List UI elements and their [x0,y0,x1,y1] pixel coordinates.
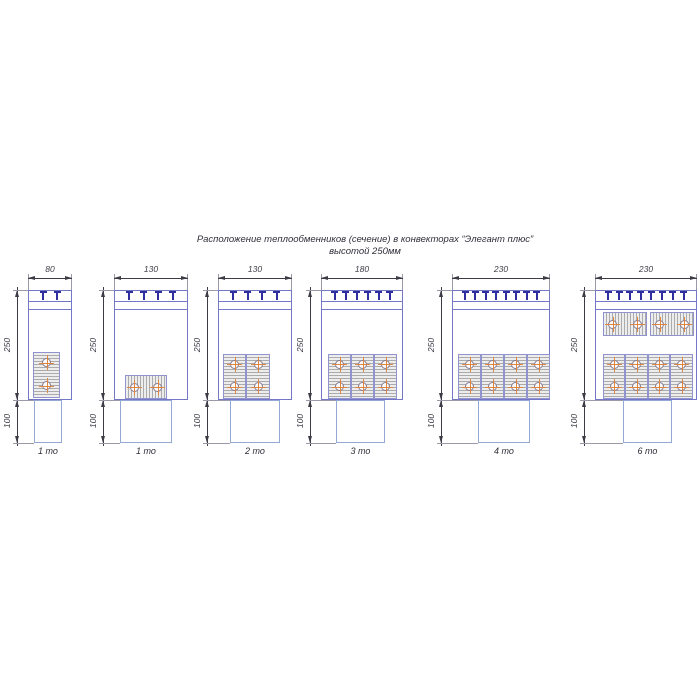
convector-4-mounting-clip-icon [334,291,336,300]
convector-4-mounting-clip-icon [378,291,380,300]
convector-1-height-dim-100-arrow-icon [15,400,19,407]
convector-1-height-dim-250-arrow-icon [15,290,19,297]
convector-3-height-dim-100-arrow-icon [205,436,209,443]
convector-6-mounting-clip-icon [607,291,609,300]
convector-5-width-dim-arrow-icon [543,276,550,280]
tube-crosshair-icon [637,379,638,394]
convector-3-height-dim-250-arrow-icon [205,393,209,400]
tube-crosshair-icon [258,379,259,394]
convector-4-height-dim-100-arrow-icon [308,436,312,443]
convector-6-height-dim-tick [580,400,623,401]
tube-crosshair-icon [470,379,471,394]
convector-1-mounting-clip-icon [42,291,44,300]
tube-crosshair-icon [613,317,614,332]
convector-4-grille-line [322,309,402,310]
convector-2-height-dim-line [103,287,104,446]
tube-crosshair-icon [47,355,48,370]
tube-crosshair-icon [539,379,540,394]
convector-5-height-dim-tick [437,290,452,291]
convector-1-width-dim-arrow-icon [28,276,35,280]
convector-4-height-dim-100-arrow-icon [308,400,312,407]
convector-5-width-dim-label: 230 [476,264,526,274]
convector-5-height-dim-label-250: 250 [426,325,436,365]
tube-crosshair-icon [659,379,660,394]
convector-3-grille-line [219,301,291,302]
convector-4-width-dim-line [321,278,403,279]
convector-5-grille-line [453,309,549,310]
convector-6-width-dim-label: 230 [621,264,671,274]
convector-3-grille-line [219,309,291,310]
tube-crosshair-icon [516,379,517,394]
convector-3-height-dim-tick [203,400,230,401]
convector-5-mounting-clip-icon [515,291,517,300]
convector-2-mounting-clip-icon [128,291,130,300]
tube-crosshair-icon [614,357,615,372]
convector-1-height-dim-label-100: 100 [2,401,12,441]
convector-5-mounting-clip-icon [485,291,487,300]
convector-2-height-dim-label-100: 100 [88,401,98,441]
convector-4-grille-line [322,301,402,302]
convector-6-height-dim-250-arrow-icon [582,393,586,400]
convector-6-grille-line [596,301,696,302]
convector-2-height-dim-tick [99,443,120,444]
tube-crosshair-icon [386,379,387,394]
convector-3-height-dim-100-arrow-icon [205,400,209,407]
tube-crosshair-icon [493,379,494,394]
convector-6-height-dim-100-arrow-icon [582,400,586,407]
tube-crosshair-icon [682,379,683,394]
convector-6-width-dim-arrow-icon [595,276,602,280]
convector-5-mounting-clip-icon [474,291,476,300]
convector-2-height-dim-250-arrow-icon [101,393,105,400]
tube-crosshair-icon [684,317,685,332]
convector-6-mounting-clip-icon [661,291,663,300]
tube-crosshair-icon [235,357,236,372]
convector-5-grille-line [453,301,549,302]
convector-3-mounting-clip-icon [276,291,278,300]
convector-3-mounting-clip-icon [232,291,234,300]
convector-4-duct-outline [336,400,385,443]
convector-5-width-dim-arrow-icon [452,276,459,280]
convector-2-height-dim-tick [99,400,120,401]
convector-3-mounting-clip-icon [247,291,249,300]
convector-4-height-dim-250-arrow-icon [308,393,312,400]
tube-crosshair-icon [386,357,387,372]
convector-3-height-dim-label-100: 100 [192,401,202,441]
convector-5-height-dim-100-arrow-icon [439,436,443,443]
convector-6-duct-outline [623,400,672,443]
convector-4-height-dim-label-250: 250 [295,325,305,365]
convector-4-width-dim-arrow-icon [396,276,403,280]
convector-5-height-dim-tick [437,443,478,444]
convector-3-height-dim-line [207,287,208,446]
convector-1-mounting-clip-icon [56,291,58,300]
convector-6-mounting-clip-icon [640,291,642,300]
convector-2-width-dim-arrow-icon [114,276,121,280]
convector-1-grille-line [29,309,71,310]
convector-2-height-dim-100-arrow-icon [101,400,105,407]
convector-3-height-dim-tick [203,443,230,444]
convector-6-height-dim-label-100: 100 [569,401,579,441]
convector-5-duct-outline [478,400,530,443]
convector-1-height-dim-line [17,287,18,446]
tube-crosshair-icon [235,379,236,394]
convector-5-height-dim-label-100: 100 [426,401,436,441]
convector-2-mounting-clip-icon [157,291,159,300]
tube-crosshair-icon [637,317,638,332]
convector-2-mounting-clip-icon [143,291,145,300]
convector-5-mounting-clip-icon [505,291,507,300]
convector-6-height-dim-line [584,287,585,446]
convector-3-width-dim-line [218,278,292,279]
convector-5-mounting-clip-icon [495,291,497,300]
convector-2-height-dim-250-arrow-icon [101,290,105,297]
convector-3-duct-outline [230,400,280,443]
convector-4-width-dim-label: 180 [337,264,387,274]
convector-5-height-dim-line [441,287,442,446]
tube-crosshair-icon [134,380,135,395]
convector-1-type-label: 1 то [18,446,78,456]
convector-2-width-dim-line [114,278,188,279]
tube-crosshair-icon [363,357,364,372]
tube-crosshair-icon [158,380,159,395]
convector-3-type-label: 2 то [225,446,285,456]
convector-3-height-dim-tick [203,290,218,291]
convector-3-mounting-clip-icon [261,291,263,300]
convector-6-grille-line [596,309,696,310]
convector-3-width-dim-label: 130 [230,264,280,274]
convector-1-width-dim-label: 80 [25,264,75,274]
convector-4-type-label: 3 то [331,446,391,456]
convector-2-height-dim-tick [99,290,114,291]
convector-6-width-dim-line [595,278,697,279]
convector-1-height-dim-label-250: 250 [2,325,12,365]
convector-4-height-dim-label-100: 100 [295,401,305,441]
convector-2-height-dim-100-arrow-icon [101,436,105,443]
convector-5-width-dim-line [452,278,550,279]
convector-1-height-dim-tick [13,400,34,401]
tube-crosshair-icon [47,378,48,393]
convector-4-height-dim-line [310,287,311,446]
tube-crosshair-icon [493,357,494,372]
tube-crosshair-icon [660,317,661,332]
convector-1-grille-line [29,301,71,302]
convector-6-mounting-clip-icon [683,291,685,300]
convector-4-height-dim-250-arrow-icon [308,290,312,297]
tube-crosshair-icon [363,379,364,394]
convector-5-type-label: 4 то [474,446,534,456]
convector-4-height-dim-tick [306,400,336,401]
convector-6-width-dim-arrow-icon [690,276,697,280]
convector-2-grille-line [115,309,187,310]
tube-crosshair-icon [258,357,259,372]
convector-3-height-dim-label-250: 250 [192,325,202,365]
convector-6-height-dim-100-arrow-icon [582,436,586,443]
convector-5-mounting-clip-icon [536,291,538,300]
convector-6-height-dim-250-arrow-icon [582,290,586,297]
convector-5-mounting-clip-icon [526,291,528,300]
convector-3-width-dim-arrow-icon [218,276,225,280]
convector-6-height-dim-tick [580,290,595,291]
convector-2-width-dim-arrow-icon [181,276,188,280]
convector-4-mounting-clip-icon [389,291,391,300]
tube-crosshair-icon [659,357,660,372]
tube-crosshair-icon [340,379,341,394]
tube-crosshair-icon [470,357,471,372]
convector-2-height-dim-label-250: 250 [88,325,98,365]
convector-4-mounting-clip-icon [367,291,369,300]
tube-crosshair-icon [340,357,341,372]
convector-6-mounting-clip-icon [672,291,674,300]
convector-6-mounting-clip-icon [629,291,631,300]
convector-2-mounting-clip-icon [172,291,174,300]
tube-crosshair-icon [637,357,638,372]
convector-1-height-dim-tick [13,290,28,291]
convector-6-mounting-clip-icon [650,291,652,300]
convector-1-height-dim-250-arrow-icon [15,393,19,400]
convector-5-height-dim-250-arrow-icon [439,393,443,400]
convector-4-mounting-clip-icon [356,291,358,300]
convector-4-height-dim-tick [306,443,336,444]
convector-5-height-dim-tick [437,400,478,401]
convector-1-duct-outline [34,400,62,443]
convector-sections-drawing: 802501001 то1302501001 то1302501002 то18… [0,0,700,700]
convector-5-mounting-clip-icon [464,291,466,300]
convector-6-type-label: 6 то [618,446,678,456]
tube-crosshair-icon [682,357,683,372]
convector-2-width-dim-label: 130 [126,264,176,274]
convector-4-height-dim-tick [306,290,321,291]
convector-6-height-dim-tick [580,443,623,444]
tube-crosshair-icon [516,357,517,372]
convector-2-grille-line [115,301,187,302]
convector-1-width-dim-arrow-icon [65,276,72,280]
convector-2-type-label: 1 то [116,446,176,456]
convector-2-duct-outline [120,400,172,443]
tube-crosshair-icon [614,379,615,394]
convector-3-width-dim-arrow-icon [285,276,292,280]
convector-5-height-dim-100-arrow-icon [439,400,443,407]
convector-5-height-dim-250-arrow-icon [439,290,443,297]
convector-4-width-dim-arrow-icon [321,276,328,280]
convector-6-mounting-clip-icon [618,291,620,300]
tube-crosshair-icon [539,357,540,372]
convector-6-height-dim-label-250: 250 [569,325,579,365]
convector-1-height-dim-100-arrow-icon [15,436,19,443]
convector-3-height-dim-250-arrow-icon [205,290,209,297]
drawing-canvas: Расположение теплообменников (сечение) в… [0,0,700,700]
convector-4-mounting-clip-icon [345,291,347,300]
convector-1-height-dim-tick [13,443,34,444]
